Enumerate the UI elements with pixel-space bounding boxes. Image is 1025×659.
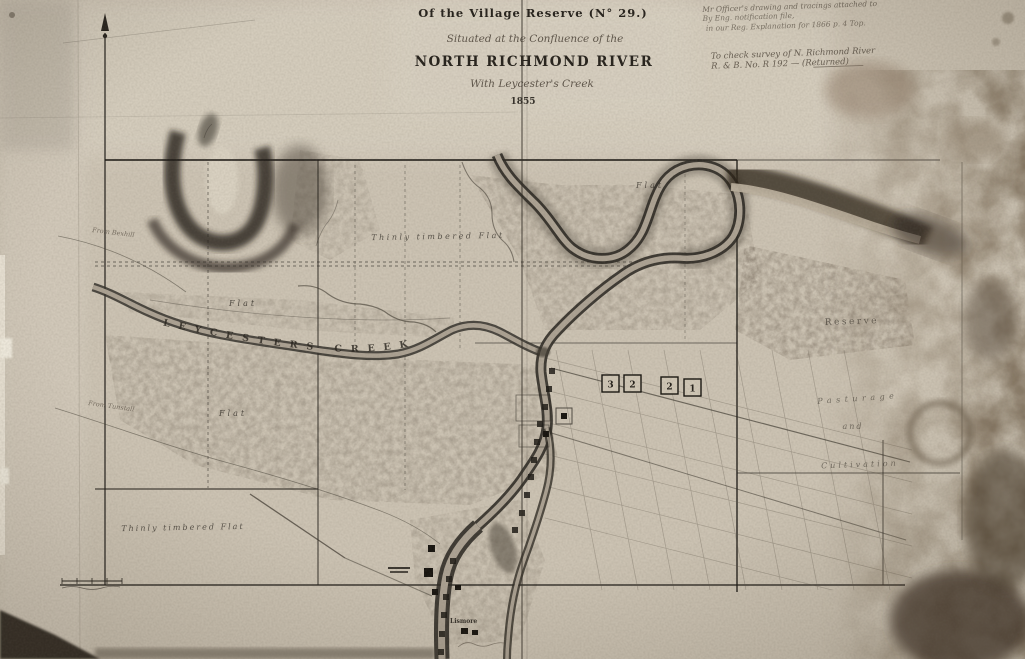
map-svg: 3 2 2 1 LEYCESTERS CREEK Flat Flat Flat … (0, 0, 1025, 659)
scanned-map-photo: 3 2 2 1 LEYCESTERS CREEK Flat Flat Flat … (0, 0, 1025, 659)
photo-vignette (0, 0, 1025, 659)
